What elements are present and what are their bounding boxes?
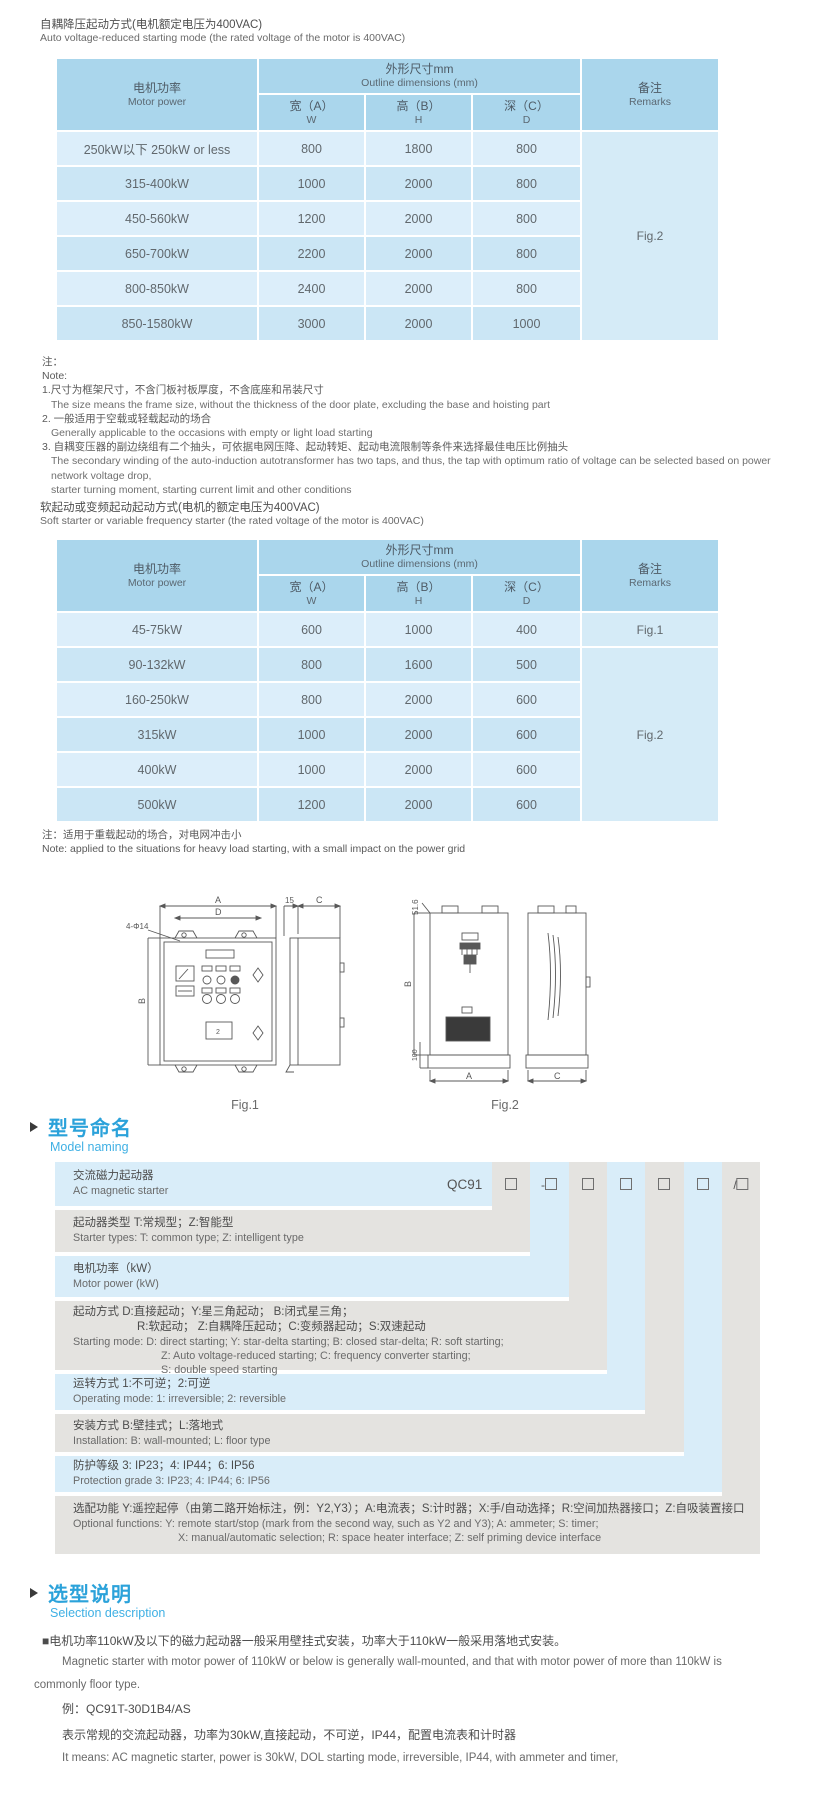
cell-w: 2200 <box>259 237 364 270</box>
figure-2-caption: Fig.2 <box>462 1098 548 1112</box>
header-remarks: 备注 Remarks <box>582 59 718 130</box>
section2-title-en: Soft starter or variable frequency start… <box>40 515 424 527</box>
cell-power: 650-700kW <box>57 237 257 270</box>
figure-1-caption: Fig.1 <box>205 1098 285 1112</box>
header-depth: 深（C）D <box>473 576 580 611</box>
table-row: 45-75kW 600 1000 400 Fig.1 <box>57 613 718 646</box>
placeholder-box-icon <box>737 1178 749 1190</box>
cell-power: 500kW <box>57 788 257 821</box>
code-box-4 <box>620 1178 632 1192</box>
fig1-dim-c-label: C <box>316 895 323 905</box>
selection-example-desc-en: It means: AC magnetic starter, power is … <box>62 1752 802 1764</box>
en-line: W <box>259 595 364 608</box>
fig1-dim-b-label: B <box>137 998 147 1004</box>
zh-line: 安装方式 B:壁挂式；L:落地式 <box>73 1419 270 1434</box>
fig1-holes-label: 4-Φ14 <box>126 922 149 931</box>
zh-line: 深（C） <box>473 99 580 114</box>
en-line: Optional functions: Y: remote start/stop… <box>73 1517 745 1531</box>
cell-w: 1000 <box>259 753 364 786</box>
model-naming-heading-en: Model naming <box>50 1140 129 1154</box>
cell-w: 800 <box>259 132 364 165</box>
en-line: S: double speed starting <box>73 1363 504 1377</box>
zh-line: 高（B） <box>366 580 471 595</box>
en-line: Remarks <box>582 96 718 109</box>
cell-d: 800 <box>473 237 580 270</box>
soft-starter-dimension-table: 电机功率 Motor power 外形尺寸mm Outline dimensio… <box>55 538 720 823</box>
header-depth: 深（C）D <box>473 95 580 130</box>
cell-power: 45-75kW <box>57 613 257 646</box>
zh-line: 备注 <box>582 562 718 577</box>
en-line: Outline dimensions (mm) <box>259 77 580 90</box>
en-line: Starter types: T: common type; Z: intell… <box>73 1231 304 1245</box>
zh-line: 电机功率（kW） <box>73 1262 159 1277</box>
cell-h: 2000 <box>366 683 471 716</box>
en-line: D <box>473 114 580 127</box>
cell-h: 1000 <box>366 613 471 646</box>
notes-table1: 注： Note: 1.尺寸为框架尺寸，不含门板衬板厚度，不含底座和吊装尺寸 Th… <box>42 355 782 497</box>
zh-line: 选配功能 Y:遥控起停（由第二路开始标注，例：Y2,Y3）；A:电流表；S:计时… <box>73 1502 745 1517</box>
selection-example-desc-zh: 表示常规的交流起动器，功率为30kW,直接起动，不可逆，IP44，配置电流表和计… <box>62 1726 802 1743</box>
cell-power: 450-560kW <box>57 202 257 235</box>
cell-h: 2000 <box>366 202 471 235</box>
cell-w: 3000 <box>259 307 364 340</box>
zh-line: 宽（A） <box>259 580 364 595</box>
cell-h: 2000 <box>366 237 471 270</box>
fig1-plate-label: 2 <box>216 1029 220 1036</box>
cell-d: 600 <box>473 683 580 716</box>
zh-line: 备注 <box>582 81 718 96</box>
zh-line: 起动器类型 T:常规型；Z:智能型 <box>73 1216 304 1231</box>
en-line: H <box>366 114 471 127</box>
cell-remark: Fig.2 <box>582 132 718 340</box>
code-column-5 <box>645 1162 684 1452</box>
en-line: Motor power <box>57 577 257 590</box>
fig1-dim-15-label: 15 <box>285 896 294 905</box>
zh-line: 宽（A） <box>259 99 364 114</box>
en-line: Protection grade 3: IP23; 4: IP44; 6: IP… <box>73 1474 270 1488</box>
fig2-dim-c-label: C <box>554 1071 561 1081</box>
en-line: D <box>473 595 580 608</box>
en-line: W <box>259 114 364 127</box>
cell-power: 400kW <box>57 753 257 786</box>
note-item: 2. 一般适用于空载或轻载起动的场合 <box>42 412 782 426</box>
placeholder-box-icon <box>620 1178 632 1190</box>
cell-d: 800 <box>473 202 580 235</box>
selection-example-code: 例：QC91T-30D1B4/AS <box>62 1700 802 1717</box>
cell-d: 800 <box>473 167 580 200</box>
note-item: 1.尺寸为框架尺寸，不含门板衬板厚度，不含底座和吊装尺寸 <box>42 383 782 397</box>
zh-line: 外形尺寸mm <box>259 62 580 77</box>
cell-power: 250kW以下 250kW or less <box>57 132 257 165</box>
naming-row-operating-mode: 运转方式 1:不可逆；2:可逆 Operating mode: 1: irrev… <box>73 1377 286 1406</box>
cell-power: 800-850kW <box>57 272 257 305</box>
note-en-label: Note: <box>42 369 782 383</box>
cell-w: 600 <box>259 613 364 646</box>
zh-line: 起动方式 D:直接起动；Y:星三角起动； B:闭式星三角； <box>73 1305 504 1320</box>
zh-line: 高（B） <box>366 99 471 114</box>
note-item-en: starter turning moment, starting current… <box>42 483 782 497</box>
cell-w: 2400 <box>259 272 364 305</box>
auto-voltage-dimension-table: 电机功率 Motor power 外形尺寸mm Outline dimensio… <box>55 57 720 342</box>
zh-line: R:软起动； Z:自耦降压起动；C:变频器起动；S:双速起动 <box>73 1320 504 1335</box>
fig1-dim-d-label: D <box>215 907 222 917</box>
fig2-dim-100-label: 100 <box>412 1049 419 1061</box>
cell-w: 1200 <box>259 788 364 821</box>
naming-row-protection-grade: 防护等级 3: IP23；4: IP44；6: IP56 Protection … <box>73 1459 270 1488</box>
cell-d: 600 <box>473 788 580 821</box>
header-motor-power: 电机功率 Motor power <box>57 59 257 130</box>
en-line: Remarks <box>582 577 718 590</box>
en-line: Outline dimensions (mm) <box>259 558 580 571</box>
catalog-page: 自耦降压起动方式(电机额定电压为400VAC) Auto voltage-red… <box>0 0 830 1797</box>
section-marker-icon <box>30 1122 38 1132</box>
zh-line: 防护等级 3: IP23；4: IP44；6: IP56 <box>73 1459 270 1474</box>
cell-w: 1000 <box>259 167 364 200</box>
note-item-en: The secondary winding of the auto-induct… <box>42 454 782 482</box>
cell-w: 1000 <box>259 718 364 751</box>
selection-paragraph-en1: Magnetic starter with motor power of 110… <box>62 1656 802 1668</box>
cell-h: 2000 <box>366 167 471 200</box>
en-line: Operating mode: 1: irreversible; 2: reve… <box>73 1392 286 1406</box>
en-line: AC magnetic starter <box>73 1184 168 1198</box>
placeholder-box-icon <box>582 1178 594 1190</box>
zh-line: 外形尺寸mm <box>259 543 580 558</box>
cell-w: 800 <box>259 648 364 681</box>
cell-h: 1800 <box>366 132 471 165</box>
cell-h: 2000 <box>366 272 471 305</box>
en-line: Motor power (kW) <box>73 1277 159 1291</box>
model-naming-diagram: 交流磁力起动器 AC magnetic starter QC91 - / 起动器… <box>55 1162 760 1554</box>
en-line: Motor power <box>57 96 257 109</box>
placeholder-box-icon <box>658 1178 670 1190</box>
note-en: Note: applied to the situations for heav… <box>42 842 782 856</box>
selection-paragraph-en2: commonly floor type. <box>34 1679 774 1691</box>
cell-h: 2000 <box>366 718 471 751</box>
placeholder-box-icon <box>545 1178 557 1190</box>
zh-line: 深（C） <box>473 580 580 595</box>
figure-1-drawing: A D 4-Φ14 B 15 C 2 <box>118 890 363 1095</box>
note-item-en: The size means the frame size, without t… <box>42 398 782 412</box>
cell-d: 800 <box>473 132 580 165</box>
cell-d: 800 <box>473 272 580 305</box>
en-line: Starting mode: D: direct starting; Y: st… <box>73 1335 504 1349</box>
cell-d: 600 <box>473 753 580 786</box>
cell-remark: Fig.1 <box>582 613 718 646</box>
header-outline-dimensions: 外形尺寸mm Outline dimensions (mm) <box>259 540 580 574</box>
note-zh: 注：适用于重载起动的场合，对电网冲击小 <box>42 828 782 842</box>
selection-heading-en: Selection description <box>50 1606 165 1620</box>
zh-line: 交流磁力起动器 <box>73 1169 168 1184</box>
cell-w: 1200 <box>259 202 364 235</box>
code-box-1 <box>505 1178 517 1192</box>
zh-line: 电机功率 <box>57 562 257 577</box>
code-box-3 <box>582 1178 594 1192</box>
header-height: 高（B）H <box>366 95 471 130</box>
note-item: 3. 自耦变压器的副边绕组有二个抽头，可依据电网压降、起动转矩、起动电流限制等条… <box>42 440 782 454</box>
placeholder-box-icon <box>697 1178 709 1190</box>
table-row: 90-132kW 800 1600 500 Fig.2 <box>57 648 718 681</box>
cell-w: 800 <box>259 683 364 716</box>
header-height: 高（B）H <box>366 576 471 611</box>
naming-row-installation: 安装方式 B:壁挂式；L:落地式 Installation: B: wall-m… <box>73 1419 270 1448</box>
cell-power: 315-400kW <box>57 167 257 200</box>
code-box-5 <box>658 1178 670 1192</box>
section1-title-zh: 自耦降压起动方式(电机额定电压为400VAC) <box>40 16 262 32</box>
cell-power: 850-1580kW <box>57 307 257 340</box>
section-marker-icon <box>30 1588 38 1598</box>
cell-power: 90-132kW <box>57 648 257 681</box>
en-line: Installation: B: wall-mounted; L: floor … <box>73 1434 270 1448</box>
code-box-7: / <box>733 1178 748 1192</box>
cell-h: 2000 <box>366 788 471 821</box>
note-item-en: Generally applicable to the occasions wi… <box>42 426 782 440</box>
selection-heading-zh: 选型说明 <box>48 1578 132 1607</box>
header-remarks: 备注 Remarks <box>582 540 718 611</box>
cell-d: 1000 <box>473 307 580 340</box>
en-line: H <box>366 595 471 608</box>
base-code: QC91 <box>447 1177 482 1192</box>
naming-row-optional-functions: 选配功能 Y:遥控起停（由第二路开始标注，例：Y2,Y3）；A:电流表；S:计时… <box>73 1502 745 1545</box>
fig2-dim-a-label: A <box>466 1071 472 1081</box>
fig2-dim-516-label: 51.6 <box>411 899 420 915</box>
zh-line: 电机功率 <box>57 81 257 96</box>
cell-power: 160-250kW <box>57 683 257 716</box>
fig2-dim-b-label: B <box>403 981 413 987</box>
naming-row-product: 交流磁力起动器 AC magnetic starter <box>73 1169 168 1198</box>
placeholder-box-icon <box>505 1178 517 1190</box>
cell-d: 600 <box>473 718 580 751</box>
en-line: Z: Auto voltage-reduced starting; C: fre… <box>73 1349 504 1363</box>
zh-line: 运转方式 1:不可逆；2:可逆 <box>73 1377 286 1392</box>
fig1-dim-a-label: A <box>215 895 221 905</box>
code-box-2: - <box>541 1178 557 1192</box>
naming-row-starter-type: 起动器类型 T:常规型；Z:智能型 Starter types: T: comm… <box>73 1216 304 1245</box>
section2-title-zh: 软起动或变频起动起动方式(电机的额定电压为400VAC) <box>40 499 320 515</box>
naming-row-starting-mode: 起动方式 D:直接起动；Y:星三角起动； B:闭式星三角； R:软起动； Z:自… <box>73 1305 504 1377</box>
cell-h: 2000 <box>366 307 471 340</box>
cell-remark: Fig.2 <box>582 648 718 821</box>
header-width: 宽（A）W <box>259 576 364 611</box>
note-zh-label: 注： <box>42 355 782 369</box>
notes-table2: 注：适用于重载起动的场合，对电网冲击小 Note: applied to the… <box>42 828 782 856</box>
figure-2-drawing: 51.6 B 100 A C <box>400 885 605 1105</box>
cell-d: 400 <box>473 613 580 646</box>
cell-h: 2000 <box>366 753 471 786</box>
cell-d: 500 <box>473 648 580 681</box>
en-line: X: manual/automatic selection; R: space … <box>73 1531 745 1545</box>
code-column-4 <box>607 1162 645 1410</box>
table-row: 250kW以下 250kW or less 800 1800 800 Fig.2 <box>57 132 718 165</box>
header-motor-power: 电机功率 Motor power <box>57 540 257 611</box>
model-naming-heading-zh: 型号命名 <box>48 1112 132 1141</box>
selection-paragraph-zh: ■电机功率110kW及以下的磁力起动器一般采用壁挂式安装，功率大于110kW一般… <box>42 1632 792 1649</box>
naming-row-motor-power: 电机功率（kW） Motor power (kW) <box>73 1262 159 1291</box>
code-column-6 <box>684 1162 722 1492</box>
cell-h: 1600 <box>366 648 471 681</box>
code-box-6 <box>697 1178 709 1192</box>
section1-title-en: Auto voltage-reduced starting mode (the … <box>40 32 405 44</box>
header-width: 宽（A）W <box>259 95 364 130</box>
header-outline-dimensions: 外形尺寸mm Outline dimensions (mm) <box>259 59 580 93</box>
cell-power: 315kW <box>57 718 257 751</box>
